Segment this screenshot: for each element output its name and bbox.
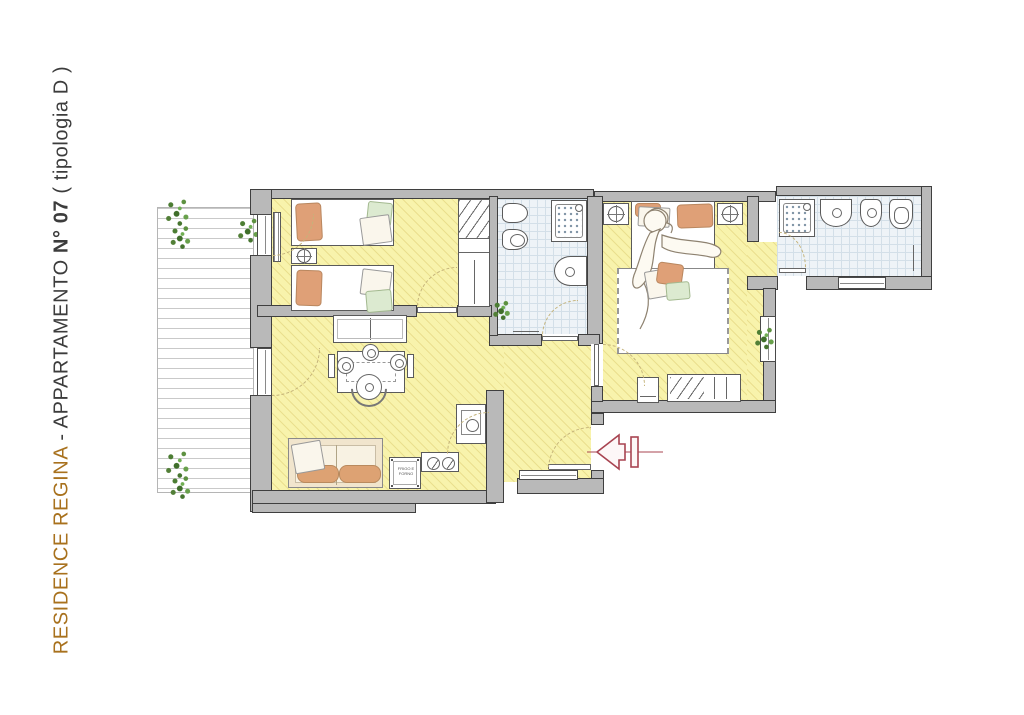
sofa-throw [291, 440, 326, 475]
towel-rail [913, 245, 914, 271]
wall-segment [591, 413, 604, 425]
wall-segment [252, 503, 416, 513]
pillow [295, 270, 322, 307]
chair-back [407, 354, 414, 378]
fridge-oven-unit: FRIGO E FORNO [389, 457, 421, 489]
wall-segment [591, 386, 603, 402]
blanket [365, 289, 393, 313]
wall-segment [257, 189, 594, 199]
door-leaf [417, 307, 457, 313]
wall-segment [776, 186, 932, 196]
wall-segment [250, 189, 272, 215]
corridor-floor [747, 242, 778, 276]
toilet [889, 199, 913, 229]
plant-icon [166, 472, 196, 502]
sink [554, 256, 587, 286]
chair [337, 357, 354, 374]
sink [820, 199, 852, 227]
sheet [359, 214, 393, 246]
bathroom2-window [838, 277, 886, 289]
door-leaf [594, 344, 599, 386]
wall-segment [252, 490, 496, 504]
sideboard [333, 315, 407, 343]
residence-name: RESIDENCE REGINA [51, 447, 73, 654]
appliance-label: FRIGO E FORNO [395, 466, 417, 476]
plan-title: RESIDENCE REGINA - APPARTAMENTO N° 07 ( … [51, 66, 74, 655]
wall-segment [250, 255, 272, 348]
wall-segment [517, 478, 604, 494]
towel-rail [513, 331, 539, 332]
wardrobe [458, 199, 490, 307]
toilet [502, 229, 528, 250]
seat-cushion [339, 465, 381, 483]
chair [390, 354, 407, 371]
plant-icon [166, 222, 196, 252]
plant-icon [490, 298, 514, 322]
sofa [288, 438, 383, 488]
balcony-door-bedroom [257, 214, 272, 256]
wall-segment [921, 186, 932, 290]
balcony-door-living [257, 348, 272, 396]
title-separator: - APPARTAMENTO [51, 253, 73, 447]
chair-back [328, 354, 335, 378]
chair [362, 344, 379, 361]
cushion [665, 281, 690, 301]
door-leaf [779, 268, 806, 273]
apartment-typology: ( tipologia D ) [51, 66, 73, 200]
floor-plan-page: RESIDENCE REGINA - APPARTAMENTO N° 07 ( … [0, 0, 1024, 715]
bidet [502, 203, 528, 223]
plant-icon [751, 324, 779, 352]
stove [421, 452, 459, 472]
shower [551, 200, 587, 242]
dresser [667, 374, 741, 402]
shower [779, 199, 815, 237]
armchair [356, 374, 382, 400]
hall-window [519, 470, 578, 480]
lamp-icon [297, 249, 311, 263]
apartment-number: N° 07 [51, 200, 73, 253]
door-leaf [542, 336, 578, 341]
entrance-arrow-icon [585, 428, 665, 476]
bidet [860, 199, 882, 227]
